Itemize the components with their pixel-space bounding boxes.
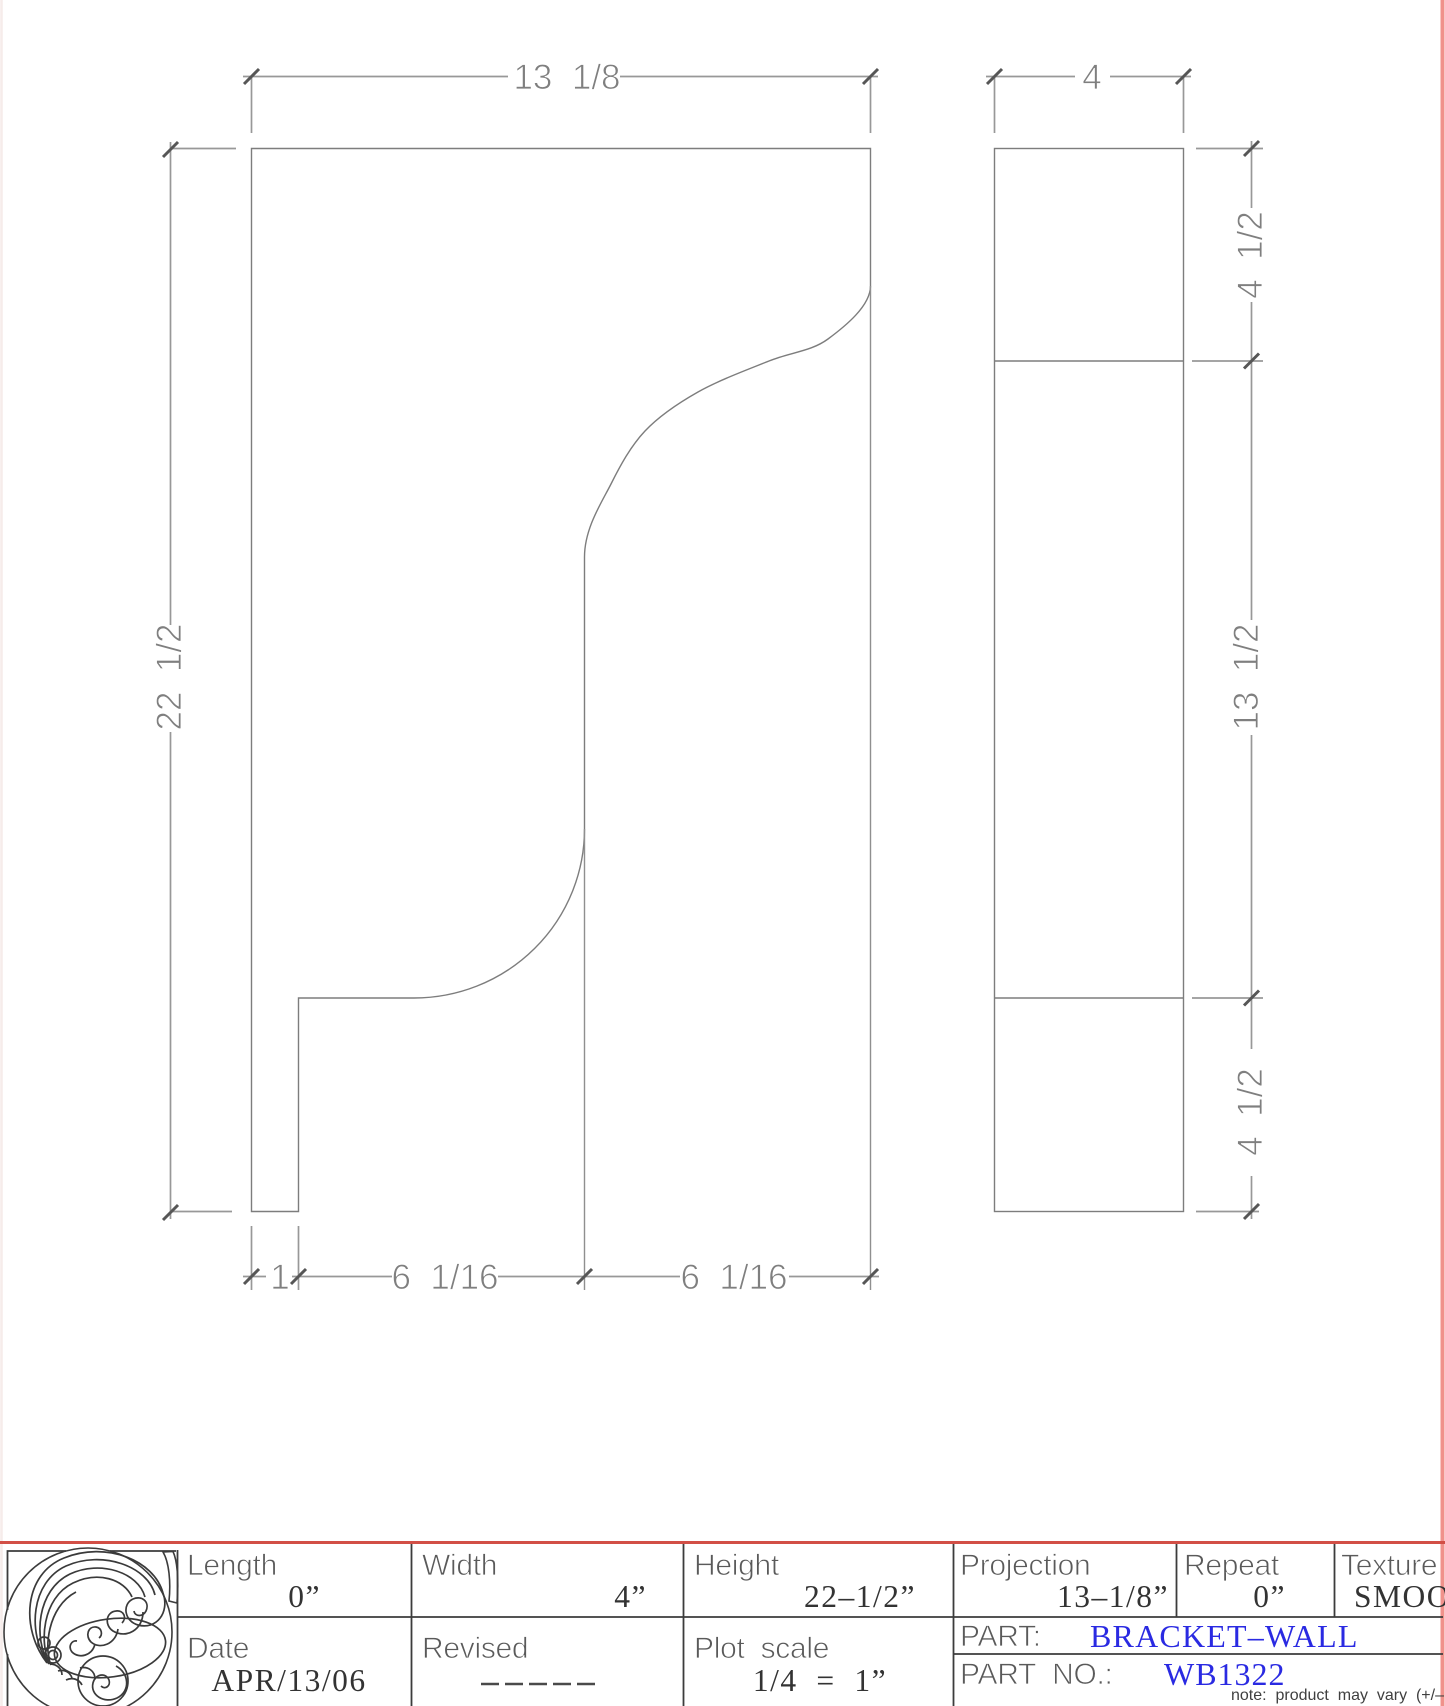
svg-text:4 1/2: 4 1/2 [1231,1068,1270,1156]
svg-text:Projection: Projection [960,1549,1090,1582]
svg-text:PART:: PART: [960,1620,1041,1653]
svg-text:SMOOTH: SMOOTH [1354,1579,1445,1614]
svg-text:0”: 0” [288,1579,321,1614]
svg-text:BRACKET–WALL: BRACKET–WALL [1090,1618,1359,1654]
svg-text:0”: 0” [1253,1579,1286,1614]
svg-text:6 1/16: 6 1/16 [391,1258,498,1297]
svg-text:22 1/2: 22 1/2 [150,623,189,730]
svg-text:note: product may vary (+/: note: product may vary (+/– [1231,1687,1444,1704]
svg-text:4 1/2: 4 1/2 [1231,211,1270,299]
svg-text:Repeat: Repeat [1184,1549,1280,1582]
svg-text:APR/13/06: APR/13/06 [211,1663,366,1698]
svg-text:1: 1 [270,1258,289,1297]
svg-text:Plot scale: Plot scale [694,1632,829,1665]
svg-text:Length: Length [187,1549,277,1582]
svg-text:13–1/8”: 13–1/8” [1057,1579,1169,1614]
svg-text:Revised: Revised [422,1632,528,1665]
svg-text:4”: 4” [614,1579,647,1614]
svg-text:4: 4 [1082,58,1101,97]
svg-text:13 1/2: 13 1/2 [1227,623,1266,730]
svg-text:Date: Date [187,1632,249,1665]
svg-text:6 1/16: 6 1/16 [680,1258,787,1297]
svg-text:1/4 = 1”: 1/4 = 1” [753,1663,887,1698]
svg-text:13 1/8: 13 1/8 [513,58,620,97]
svg-text:Texture: Texture [1341,1549,1437,1582]
svg-text:PART NO.:: PART NO.: [960,1658,1113,1691]
svg-text:22–1/2”: 22–1/2” [804,1579,916,1614]
svg-text:Width: Width [422,1549,497,1582]
svg-text:Height: Height [694,1549,780,1582]
